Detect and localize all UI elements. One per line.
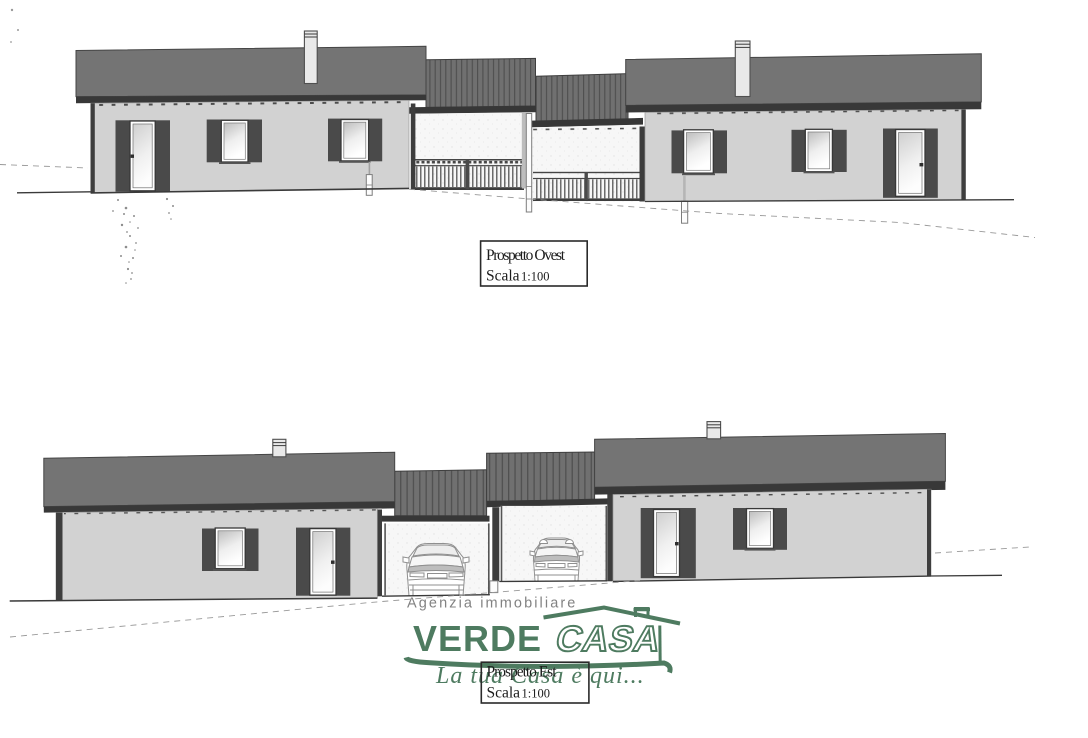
svg-text:Prospetto Ovest: Prospetto Ovest xyxy=(486,247,566,264)
svg-text:Prospetto Est: Prospetto Est xyxy=(487,664,558,681)
svg-text:Scala: Scala xyxy=(487,685,521,702)
svg-text:VERDE: VERDE xyxy=(413,618,542,659)
svg-text:Agenzia immobiliare: Agenzia immobiliare xyxy=(407,596,577,612)
svg-text:Scala: Scala xyxy=(486,268,520,285)
svg-text:1:100: 1:100 xyxy=(522,687,550,701)
svg-text:CASA: CASA xyxy=(552,618,665,659)
svg-text:1:100: 1:100 xyxy=(521,270,549,284)
